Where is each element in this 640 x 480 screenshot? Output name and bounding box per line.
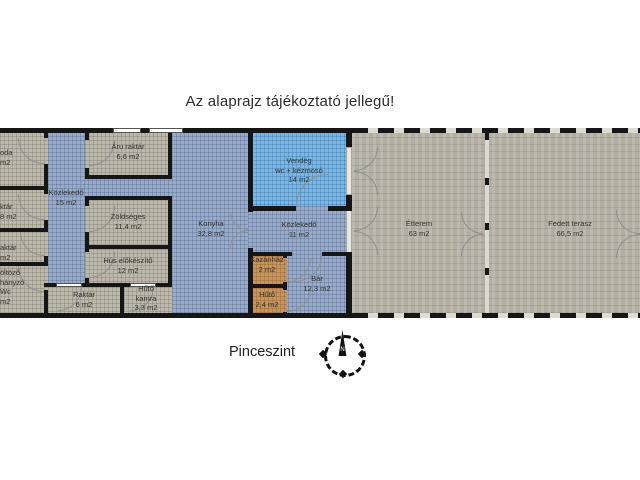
compass-north-label: N [336,347,349,353]
room-label-bar: Bár 12,3 m2 [272,274,362,293]
room-label-kozlekedo15: Közlekedő 15 m2 [21,188,111,207]
window [149,128,183,133]
room-label-zoldseges: Zöldséges 11,4 m2 [83,212,173,231]
room-label-kozlekedo11: Közlekedő 11 m2 [254,220,344,239]
room-label-aru-raktar: Áru raktár 6,6 m2 [83,142,173,161]
compass-icon: N [321,330,367,376]
room-label-kazanhaz: Kazánház 2 m2 [222,255,312,274]
column-line-etterem-terasz [485,133,489,313]
wall [328,206,352,211]
wall [85,175,172,179]
wall-top-terrace-dashed [352,128,640,133]
wall [248,128,253,212]
floorplan-canvas: Az alaprajz tájékoztató jellegű! [0,0,640,480]
room-label-vendeg-wc: Vendég wc + kézmosó 14 m2 [254,156,344,185]
wall [283,312,287,318]
door-threshold [346,147,352,195]
wall [85,232,89,252]
window [113,128,141,133]
wall [85,245,172,249]
room-label-huto-kamra: Hűtő kamra 3,3 m2 [101,284,191,313]
room-label-konyha: Konyha 32,8 m2 [166,219,256,238]
wall-bottom-left-building [0,313,352,318]
room-label-iroda: oda m2 [0,148,34,167]
room-label-raktar-cut2: aktár m2 [0,243,34,262]
level-label: Pinceszint [229,344,295,360]
room-label-oltozo: öltöző hányzó Wc m2 [0,268,38,306]
wall-bottom-terrace-dashed [352,313,640,318]
wall-building-right [346,128,352,147]
plan-disclaimer-title: Az alaprajz tájékoztató jellegű! [0,93,580,110]
room-label-fedett-terasz: Fedett terasz 66,5 m2 [525,219,615,238]
room-label-etterem: Étterem 63 m2 [374,219,464,238]
door-threshold [346,207,352,255]
wall [322,252,352,256]
wall [248,206,296,211]
wall [44,128,48,138]
room-label-hus-elokeszito: Hús előkészítő 12 m2 [83,256,173,275]
wall [85,128,89,140]
